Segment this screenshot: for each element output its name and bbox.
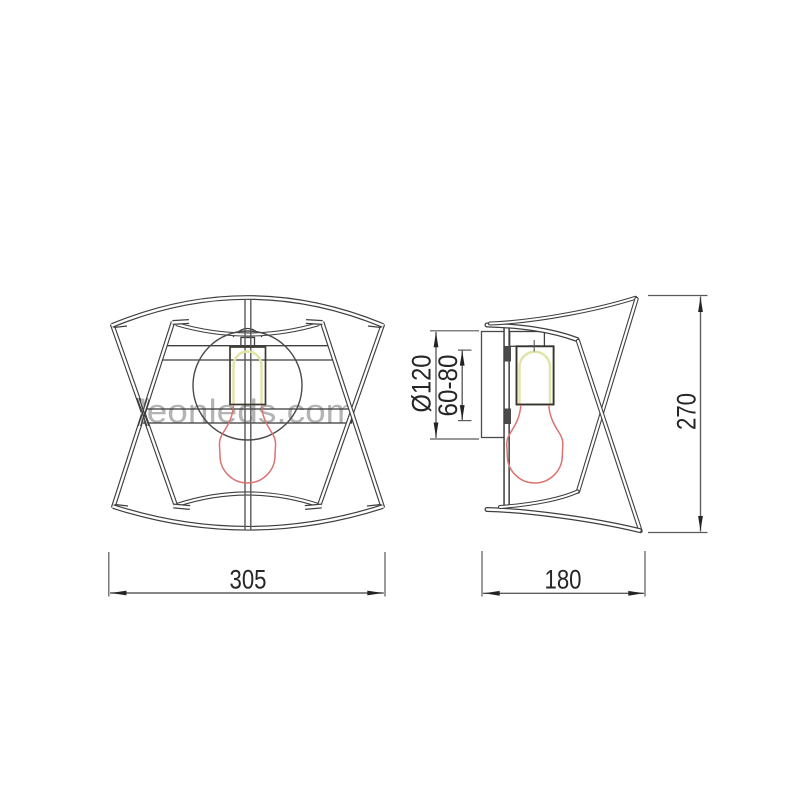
svg-text:305: 305 — [230, 565, 267, 595]
svg-text:180: 180 — [545, 565, 582, 595]
svg-text:Ø120: Ø120 — [407, 355, 437, 413]
svg-text:270: 270 — [672, 393, 702, 430]
svg-text:leonleds.com: leonleds.com — [139, 393, 357, 430]
svg-text:60-80: 60-80 — [433, 355, 463, 417]
